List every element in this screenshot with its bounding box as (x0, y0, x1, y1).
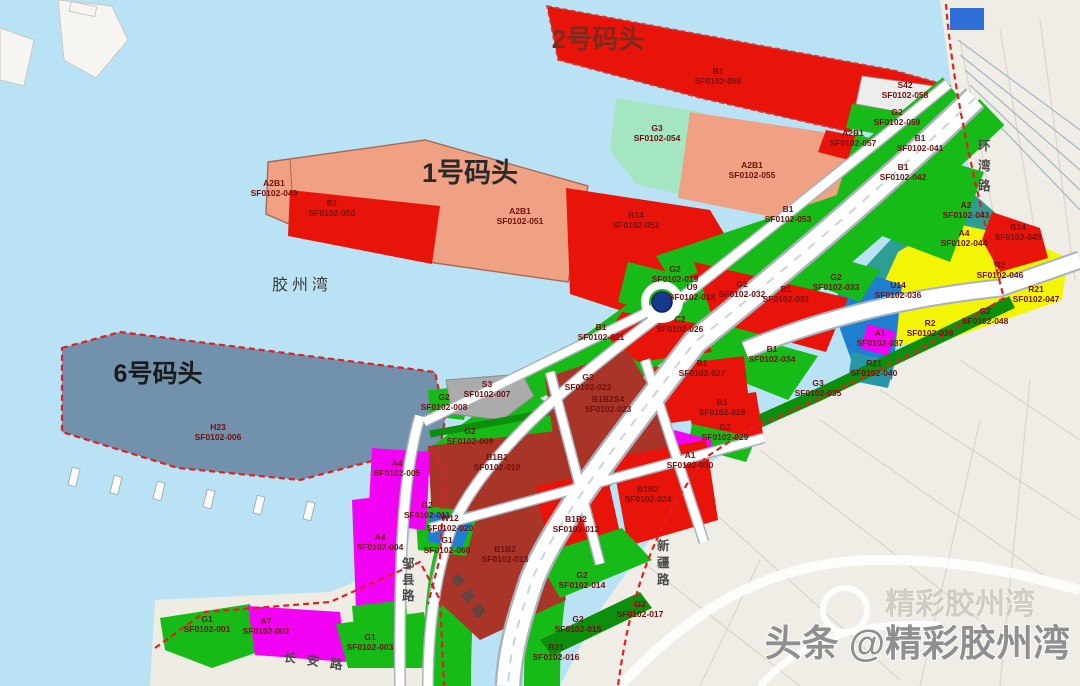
road-name-1: 新疆路 (657, 538, 670, 587)
bay-label: 胶州湾 (272, 276, 332, 294)
planning-map: 2号码头 1号码头 6号码头 胶州湾 B1SF0102-056S42SF0102… (0, 0, 1080, 686)
pier6-title: 6号码头 (114, 360, 203, 388)
pier1-title: 1号码头 (422, 158, 518, 188)
map-canvas: 2号码头 1号码头 6号码头 胶州湾 B1SF0102-056S42SF0102… (0, 0, 1080, 686)
pier2-title: 2号码头 (552, 24, 644, 54)
road-name-0: 环湾路 (978, 139, 991, 193)
watermark: 头条 @精彩胶州湾 (765, 622, 1070, 664)
blue-block-topright (950, 8, 984, 30)
watermark-ghost: 精彩胶州湾 (885, 587, 1035, 621)
road-name-2: 邹县路 (402, 556, 415, 603)
